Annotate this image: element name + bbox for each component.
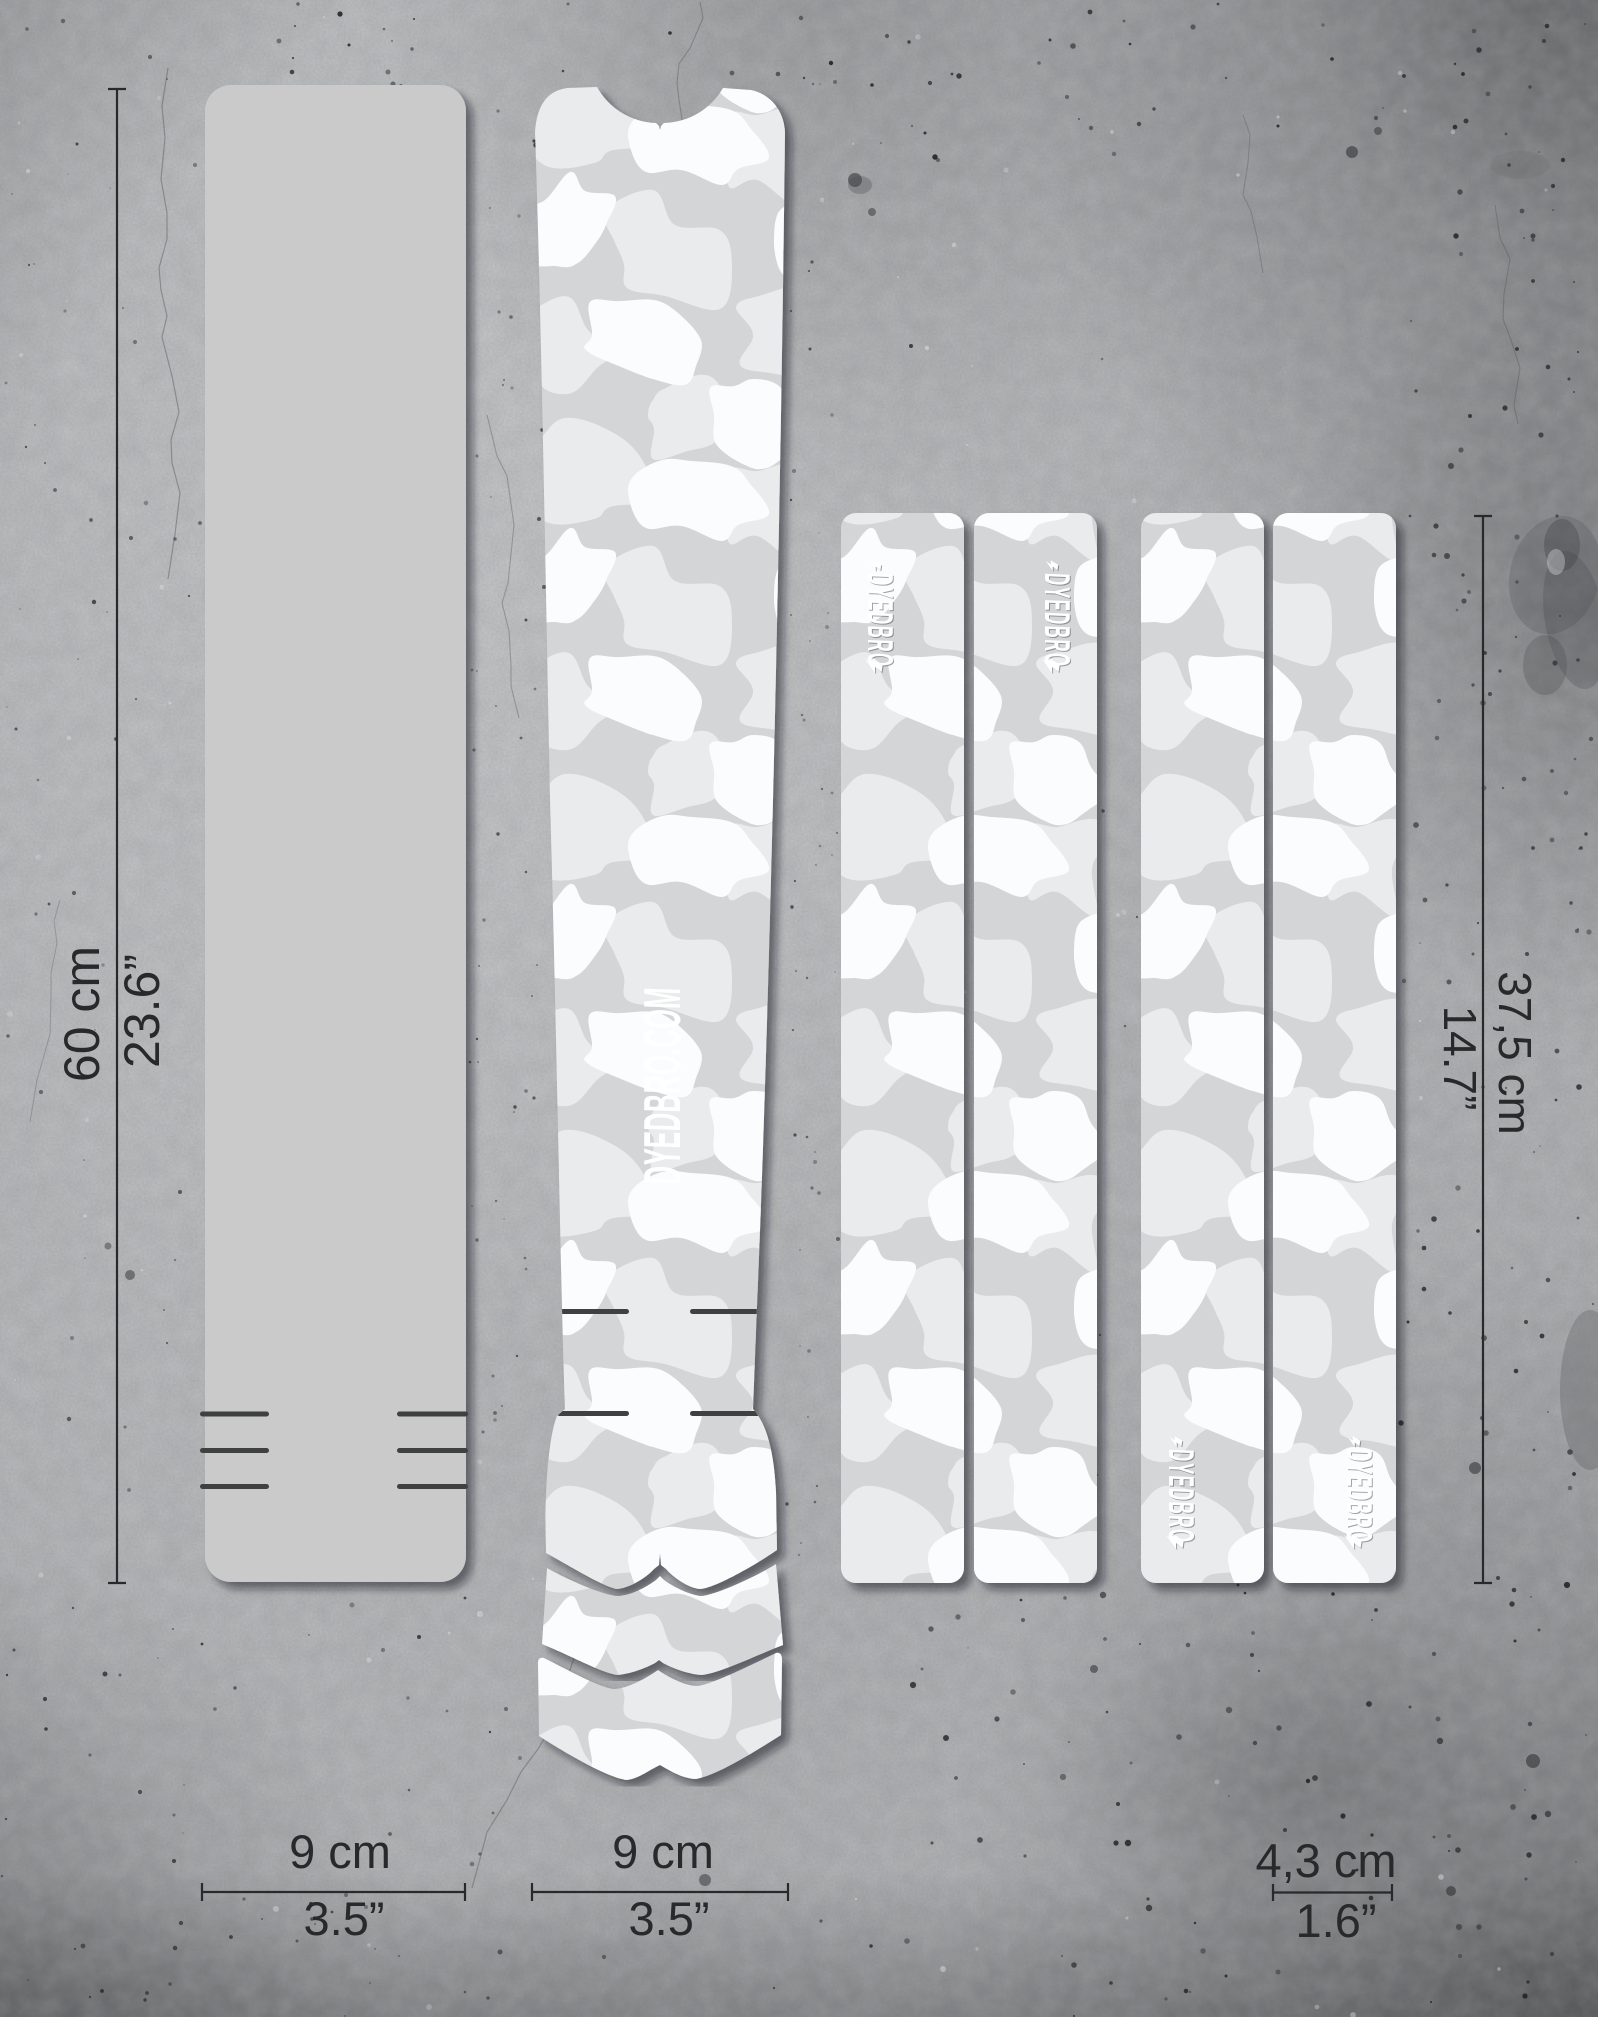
svg-text:DYEDBRO.COM: DYEDBRO.COM xyxy=(633,986,691,1185)
svg-text:9 cm: 9 cm xyxy=(289,1825,391,1878)
svg-text:9 cm: 9 cm xyxy=(612,1825,714,1878)
svg-text:37,5 cm: 37,5 cm xyxy=(1489,971,1541,1135)
svg-text:DYEDBRO: DYEDBRO xyxy=(1037,572,1077,668)
svg-text:DYEDBRO: DYEDBRO xyxy=(1161,1448,1201,1544)
svg-text:1.6”: 1.6” xyxy=(1296,1894,1377,1947)
svg-text:3.5”: 3.5” xyxy=(629,1892,710,1945)
svg-text:14.7”: 14.7” xyxy=(1434,1006,1486,1111)
svg-text:60 cm: 60 cm xyxy=(54,946,110,1082)
svg-text:3.5”: 3.5” xyxy=(304,1892,385,1945)
svg-text:4,3 cm: 4,3 cm xyxy=(1255,1834,1396,1887)
svg-text:23.6”: 23.6” xyxy=(114,954,170,1068)
svg-text:DYEDBRO: DYEDBRO xyxy=(860,572,900,668)
svg-text:DYEDBRO: DYEDBRO xyxy=(1339,1448,1379,1544)
